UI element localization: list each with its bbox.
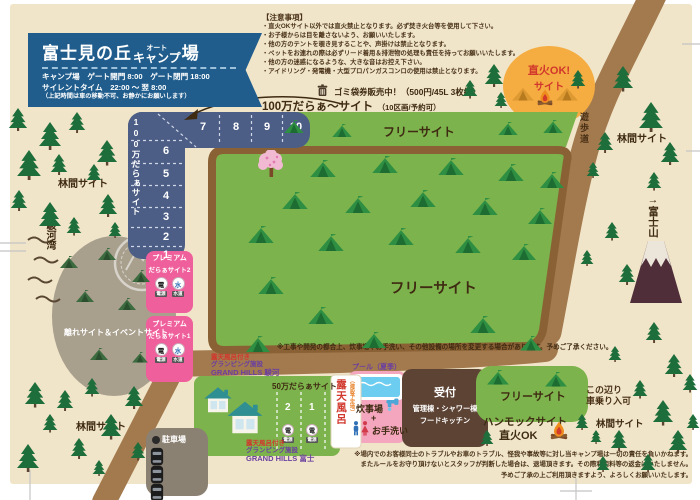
notice-box: 【注意事項】 ・直火OKサイト以外では直火禁止となります。必ず焚き火台等を使用し… <box>262 12 558 77</box>
fifty-site-label: 50万だらぁサイト <box>272 381 337 392</box>
fifty-plot1: 1 <box>309 402 315 413</box>
car-entry-l1: この辺り <box>586 385 631 396</box>
premium-site1-name: だらぁサイト1 <box>147 331 192 340</box>
notice-item: ・アイドリング・発電機・大型プロパンガスコンロの使用は禁止となります。 <box>262 68 558 77</box>
site-number: 8 <box>226 121 246 133</box>
premium-title: プレミアム <box>147 319 192 329</box>
disclaimer-line: ※場内でのお客様同士のトラブルやお車のトラブル、怪我や事故等に対し当キャンプ場は… <box>300 450 692 460</box>
disclaimer-line: 予めご了承の上ご利用頂きますよう、よろしくお願いいたします。 <box>300 471 692 481</box>
free-site-label-main: フリーサイト <box>390 277 477 298</box>
notice-item: ・直火OKサイト以外では直火禁止となります。必ず焚き火台等を使用して下さい。 <box>262 23 558 32</box>
disclaimer: ※場内でのお客様同士のトラブルやお車のトラブル、怪我や事故等に対し当キャンプ場は… <box>300 450 692 481</box>
silent-time: サイレントタイム 22:00 ～ 翌 8:00 <box>42 83 236 94</box>
car-icon-badge <box>152 436 160 444</box>
header-divider <box>42 67 236 69</box>
rinkan-label-sw: 林間サイト <box>76 418 126 433</box>
notice-item: ・他の方の迷惑になるような、大きな音はお控え下さい。 <box>262 59 558 68</box>
jikabi-label: 直火OK! サイト <box>519 62 579 93</box>
camp-title-main: 富士見の丘 <box>42 39 132 64</box>
disclaimer-line: またルールをお守り頂けないとスタッフが判断した場合は、退場頂きます。その際利用料… <box>300 460 692 470</box>
free-site-label-south: フリーサイト <box>500 388 566 404</box>
hours-note: （上記時間は車の移動不可、お静かにお願いします） <box>42 93 236 102</box>
notice-item: ・ペットをお連れの際は必ずリード着用＆排泄物の処理も責任を持ってお願いいたします… <box>262 50 558 59</box>
reception-l1: 受付 <box>402 384 488 400</box>
site-number: 2 <box>156 231 176 243</box>
million-site-label: 100万だらぁ～サイト （10区画/予約可） <box>262 97 441 115</box>
site-number: 10 <box>286 121 306 133</box>
notice-list: ・直火OKサイト以外では直火禁止となります。必ず焚き火台等を使用して下さい。・お… <box>262 23 558 77</box>
field-note: ※工事や開発の都合上、炊事場やお手洗い、その他設備の場所を変更する場合があります… <box>277 341 612 351</box>
power-icon: 電電源 <box>155 343 168 363</box>
rinkan-label-se: 林間サイト <box>596 416 644 430</box>
site-number: 3 <box>156 211 176 223</box>
camp-title-camp: キャンプ <box>133 52 181 64</box>
site-number: 4 <box>156 190 176 202</box>
premium-site2: プレミアム だらぁサイト2 電電源 水水道 <box>147 253 192 297</box>
rotenburo-note: （建設予定地） <box>349 378 356 446</box>
site-number: 6 <box>156 145 176 157</box>
fifty-plot2: 2 <box>285 402 291 413</box>
reception-l3: フードキッチン <box>402 416 488 426</box>
hammock-l2: 直火OK <box>499 427 538 443</box>
suruga-arrow: ← <box>44 206 55 218</box>
fuji-label: →富士山 <box>646 194 661 238</box>
notice-item: ・お子様からは目を離さないよう、お願いいたします。 <box>262 32 558 41</box>
glamping-suruga-l3: GRAND HILLS 駿河 <box>211 369 279 378</box>
million-strip-label: 100万だらぁサイト <box>130 117 142 257</box>
notice-item: ・他の方のテントを覗き見することや、声掛けは禁止となります。 <box>262 41 558 50</box>
parking-label: 駐車場 <box>152 434 186 445</box>
rinkan-label-nw: 林間サイト <box>58 175 108 190</box>
jikabi-line2: サイト <box>519 78 579 93</box>
power-icon: 電電源 <box>155 277 168 297</box>
reception-l2: 管理棟・シャワー棟 <box>402 404 488 414</box>
million-site-note: （10区画/予約可） <box>378 103 441 112</box>
parking-text: 駐車場 <box>162 434 186 445</box>
site-number: 7 <box>193 121 213 133</box>
pool-label: プール（夏季） <box>352 362 401 372</box>
free-site-label-top: フリーサイト <box>383 123 455 140</box>
million-site-name: 100万だらぁ～サイト <box>262 101 373 113</box>
rinkan-label-e: 林間サイト <box>617 130 667 145</box>
main-field <box>212 150 568 350</box>
cooking-plus: + <box>371 413 376 423</box>
gate-hours: キャンプ場 ゲート開門 8:00 ゲート閉門 18:00 <box>42 72 236 83</box>
camp-title-ba: 場 <box>182 39 199 64</box>
pool <box>356 377 400 397</box>
premium-title: プレミアム <box>147 253 192 263</box>
jikabi-line1: 直火OK! <box>519 62 579 78</box>
site-number: 5 <box>156 168 176 180</box>
campground-map: 富士見の丘 オート キャンプ 場 キャンプ場 ゲート開門 8:00 ゲート閉門 … <box>0 0 700 500</box>
car-entry-note: この辺り 車乗り入可 <box>586 385 631 408</box>
reception-label: 受付 管理棟・シャワー棟 フードキッチン <box>402 384 488 426</box>
notice-heading: 【注意事項】 <box>262 12 558 23</box>
water-icon: 水水道 <box>172 343 185 363</box>
water-icon: 水水道 <box>172 277 185 297</box>
cooking-label: 炊事場 <box>356 402 383 415</box>
car-entry-l2: 車乗り入可 <box>586 396 631 407</box>
header-banner: 富士見の丘 オート キャンプ 場 キャンプ場 ゲート開門 8:00 ゲート閉門 … <box>28 33 262 107</box>
suruga-label: 駿河湾 <box>42 220 57 250</box>
glamping-suruga-label: 露天風呂付き グランピング施設 GRAND HILLS 駿河 <box>211 354 279 378</box>
premium-site1: プレミアム だらぁサイト1 電電源 水水道 <box>147 319 192 363</box>
rotenburo-label: 露天風呂 <box>334 379 349 445</box>
premium-site2-name: だらぁサイト2 <box>147 265 192 274</box>
site-number: 9 <box>257 121 277 133</box>
yuhodo-label: 遊歩道 <box>578 112 591 145</box>
